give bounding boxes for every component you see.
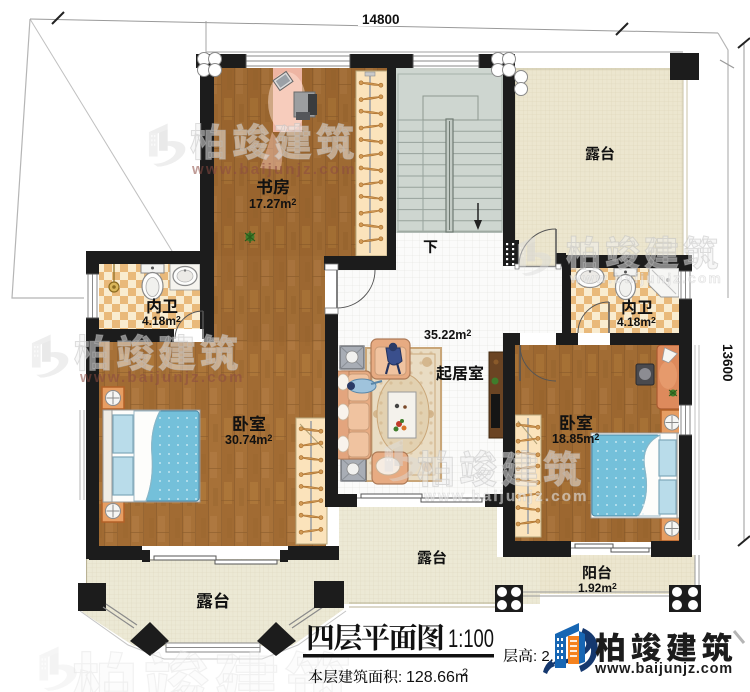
svg-text:17.27m2: 17.27m2: [249, 197, 296, 211]
svg-text:4.18m2: 4.18m2: [617, 315, 656, 329]
svg-text:www.baijunjz.com: www.baijunjz.com: [79, 369, 245, 386]
svg-text:18.85m2: 18.85m2: [552, 432, 599, 446]
svg-text:1:100: 1:100: [448, 625, 494, 653]
svg-text:128.66m: 128.66m: [406, 669, 468, 686]
svg-text:2: 2: [462, 667, 468, 679]
svg-text:www.baijunjz.com: www.baijunjz.com: [569, 270, 723, 286]
svg-text:13600: 13600: [720, 344, 735, 382]
svg-text:35.22m2: 35.22m2: [424, 328, 471, 342]
svg-text:4.18m2: 4.18m2: [142, 314, 181, 328]
svg-text:1.92m2: 1.92m2: [578, 581, 617, 595]
svg-text:www.baijunjz.com: www.baijunjz.com: [423, 488, 589, 505]
svg-text::: :: [398, 669, 402, 686]
svg-text:www.baijunjz.com: www.baijunjz.com: [594, 661, 733, 677]
svg-text:www.baijunjz.com: www.baijunjz.com: [191, 161, 357, 178]
svg-text:14800: 14800: [362, 12, 400, 27]
svg-text:30.74m2: 30.74m2: [225, 433, 272, 447]
